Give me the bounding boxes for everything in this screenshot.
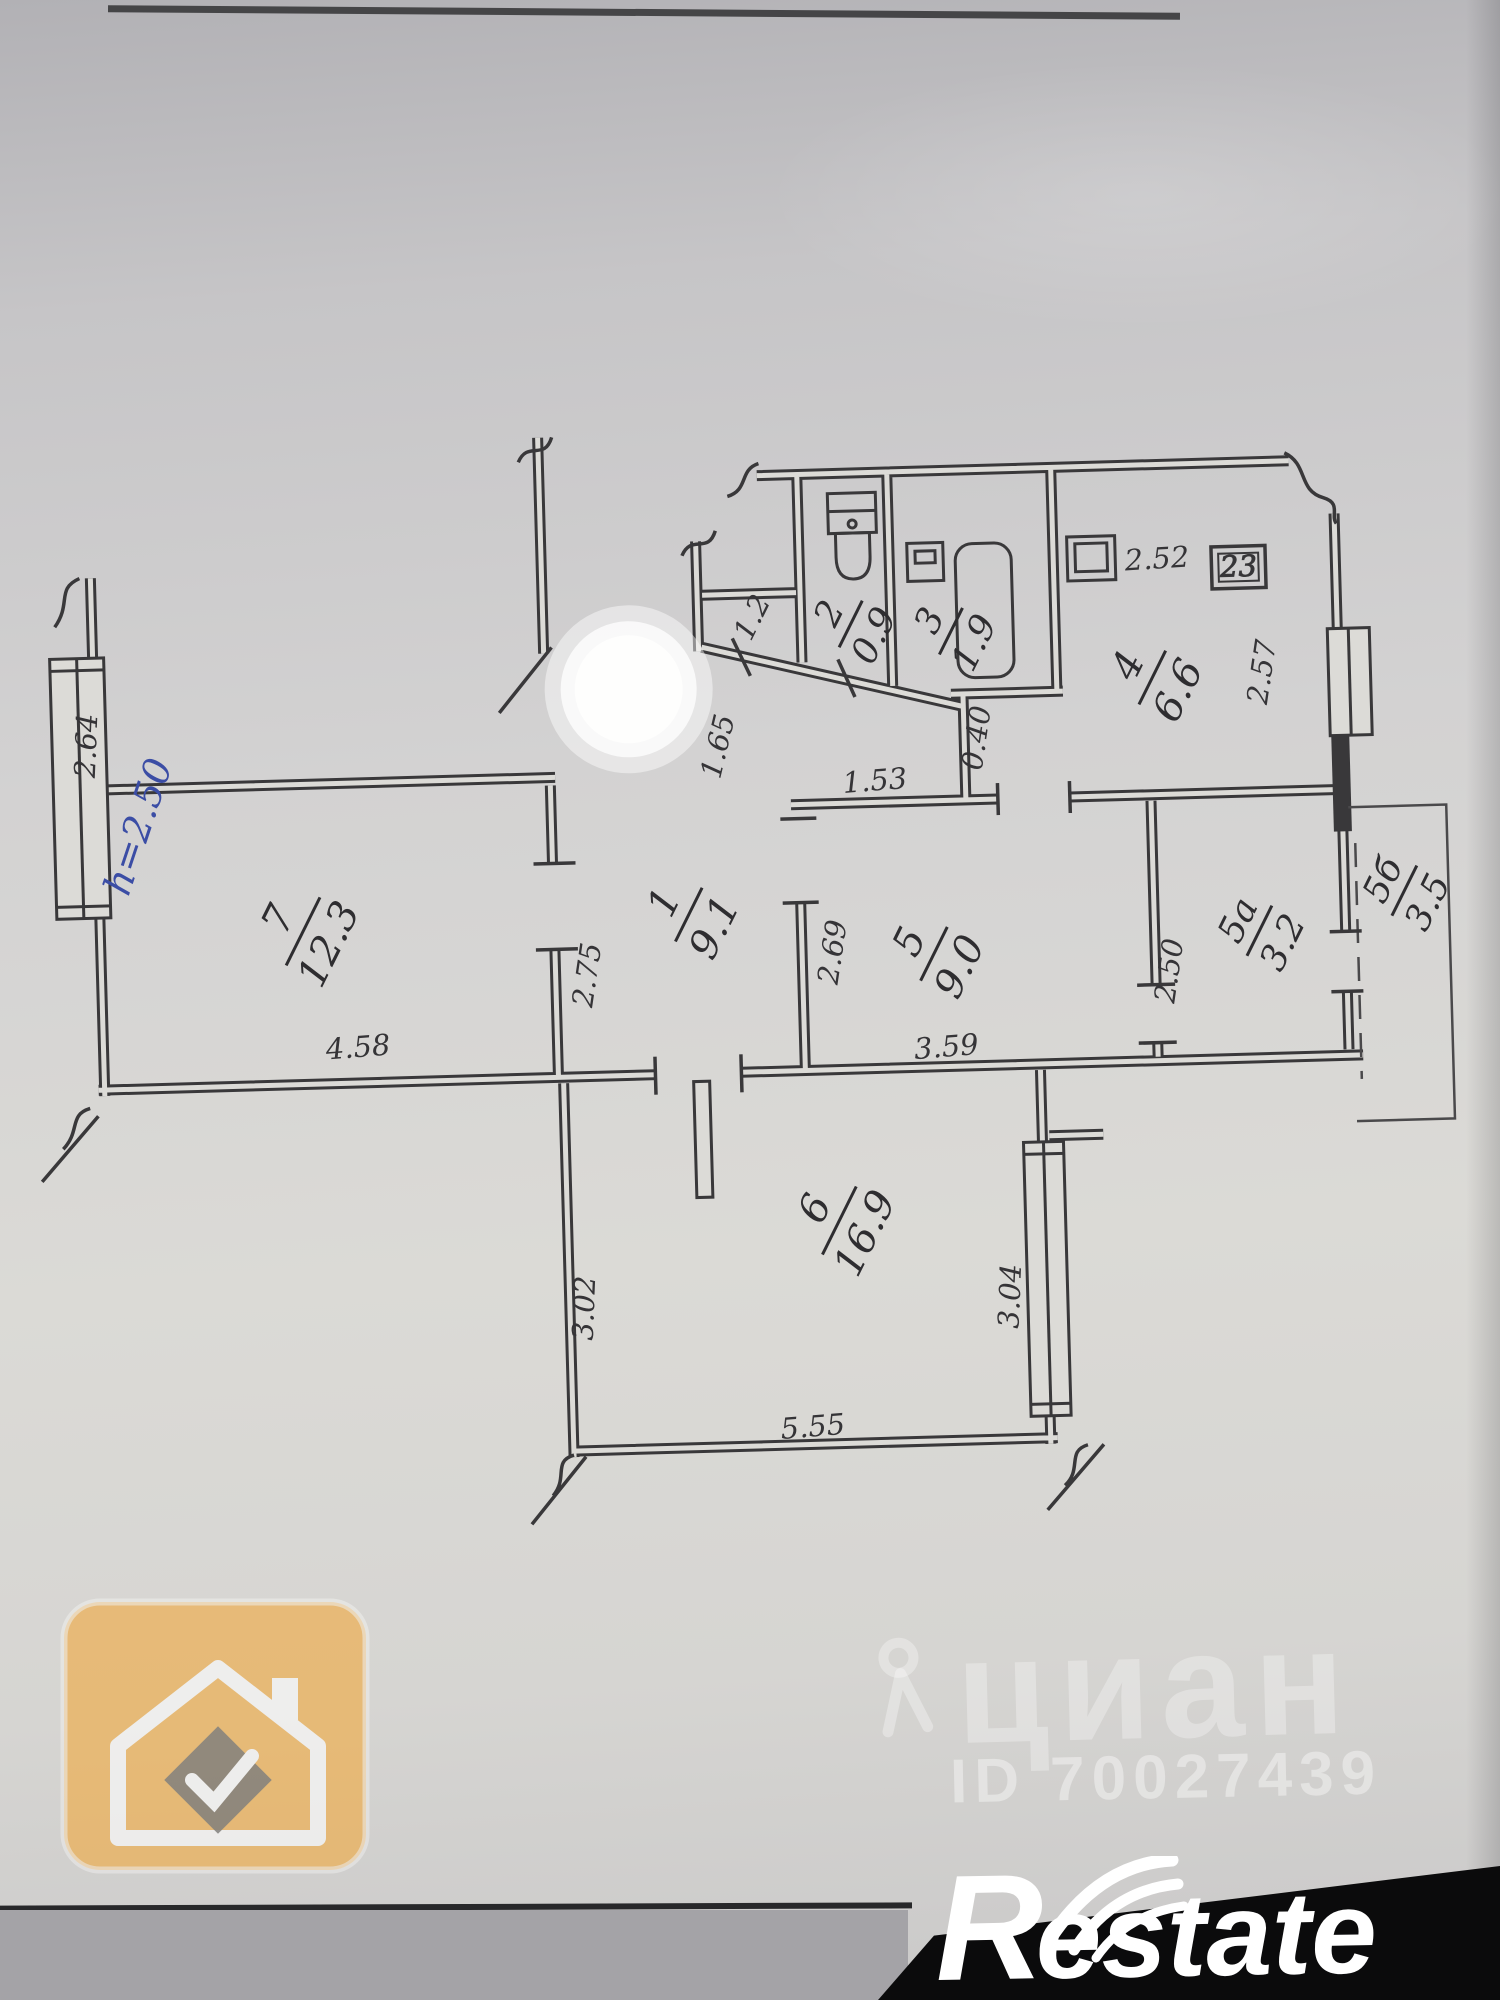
- bath-sink-icon: [907, 542, 944, 581]
- room-label-bath: 3 1.9: [899, 586, 1006, 678]
- dim-room7-right: 2.75: [565, 940, 608, 1010]
- room-label-balcony: 5б 3.5: [1352, 845, 1459, 937]
- dim-room6-right: 3.04: [991, 1263, 1028, 1329]
- restate-letter-r: R: [934, 1856, 1045, 2000]
- restate-logo: Restate: [898, 1856, 1500, 2000]
- restate-text: Restate: [934, 1856, 1378, 2000]
- restate-letters: estate: [1034, 1866, 1377, 2000]
- room-num: 5а: [1210, 891, 1266, 949]
- dim-room5-top: 1.53: [841, 761, 908, 800]
- room-area: 6.6: [1144, 652, 1213, 729]
- table-surface: [0, 1910, 908, 2000]
- room-num: 3: [906, 601, 953, 640]
- unit-number: 23: [1219, 549, 1258, 584]
- dim-kitchen-right: 2.57: [1240, 637, 1283, 707]
- room-num: 2: [806, 594, 853, 634]
- room-area: 12.3: [289, 894, 370, 994]
- toilet-icon: [827, 492, 877, 579]
- room-area: 1.9: [944, 608, 1006, 678]
- room-num: 5б: [1355, 850, 1412, 909]
- dim-room6-left: 3.02: [566, 1275, 603, 1341]
- photo-background: 23 1 9.1 2 0.9 3 1.9 4 6.6: [0, 0, 1500, 2000]
- wall-pier: [1331, 731, 1352, 831]
- agency-badge-icon: [56, 1594, 381, 1879]
- dim-kitchen-top: 2.52: [1123, 539, 1191, 577]
- dim-room7-bottom: 4.58: [323, 1027, 391, 1066]
- unit-number-box: 23: [1211, 545, 1266, 588]
- room-num: 4: [1101, 644, 1154, 688]
- room-num: 7: [253, 897, 306, 941]
- dim-room5-left: 2.69: [811, 918, 854, 988]
- room-label-hall: 1 9.1: [630, 864, 750, 966]
- room-num: 5: [883, 920, 936, 963]
- kitchen-sink-icon: [1067, 536, 1116, 581]
- flash-glare: [542, 603, 715, 776]
- room-label-kitchen: 4 6.6: [1093, 627, 1213, 729]
- room-num: 6: [789, 1187, 842, 1230]
- room-label-closet: 5а 3.2: [1207, 885, 1314, 977]
- dim-room5-bottom: 3.59: [913, 1027, 980, 1066]
- room6-door-leaf: [694, 1081, 713, 1197]
- room-area: 9.0: [925, 928, 994, 1005]
- dim-room7-left: 2.64: [68, 713, 105, 780]
- room-area: 9.1: [680, 889, 749, 966]
- balcony-outline: [1348, 805, 1455, 1122]
- cian-id: ID 70027439: [949, 1737, 1382, 1817]
- room-label-room5: 5 9.0: [875, 903, 995, 1005]
- room-area: 16.9: [825, 1183, 906, 1283]
- cian-pin-icon: [861, 1627, 944, 1739]
- room-label-room7: 7 12.3: [238, 869, 369, 994]
- room-label-room6: 6 16.9: [775, 1158, 906, 1283]
- dim-room6-bottom: 5.55: [779, 1407, 846, 1446]
- room-num: 1: [638, 881, 691, 924]
